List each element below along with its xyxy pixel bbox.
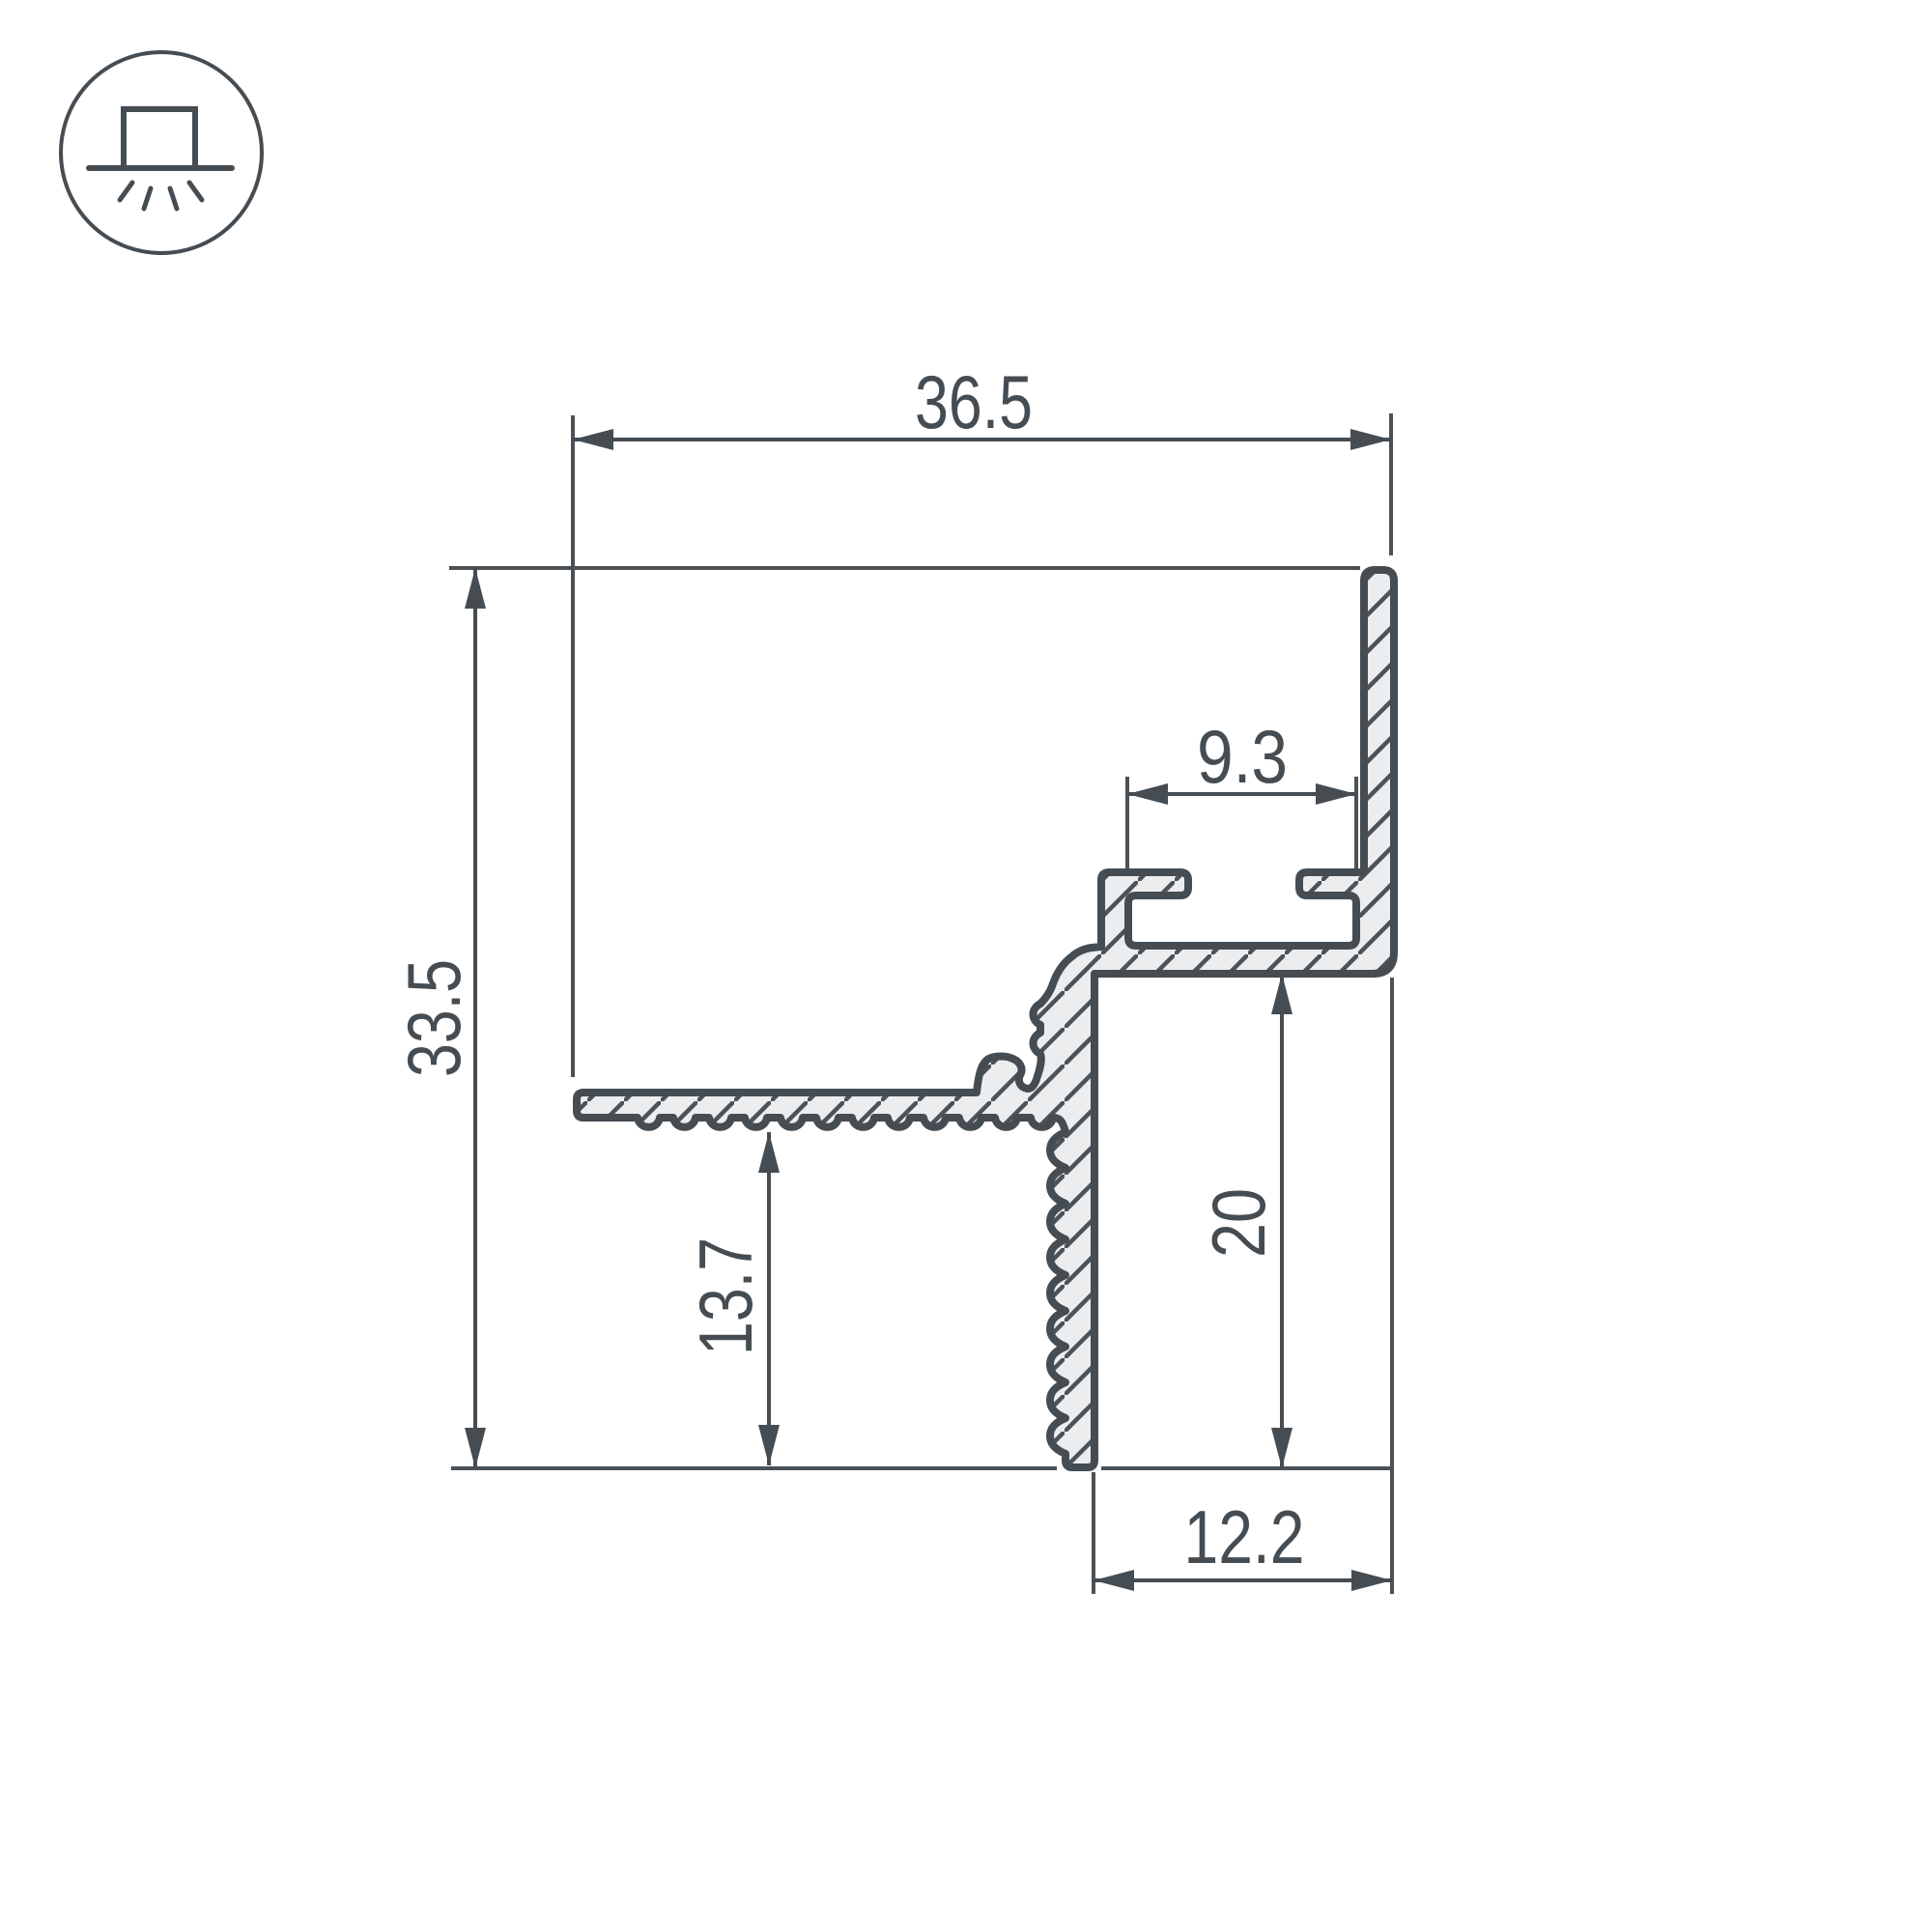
arrowhead-right [1351,1570,1392,1591]
arrowhead-bottom [465,1428,486,1468]
icon-circle [61,52,262,253]
arrowhead-right [1316,783,1356,805]
dim-value-wall-depth: 20 [1196,1188,1281,1258]
dim-value-flange-depth: 13.7 [683,1237,768,1355]
dim-value-overall-width: 36.5 [915,359,1033,444]
profile-technical-drawing: 36.5 33.5 9.3 20 13.7 12.2 [0,0,1932,1932]
dimension-slot-width: 9.3 [1127,714,1356,805]
arrowhead-bottom [758,1425,780,1465]
contour-and-extension-lines [449,413,1392,1594]
icon-light-rays [120,183,202,209]
arrowhead-left [573,429,613,450]
dim-value-slot-width: 9.3 [1197,714,1288,799]
dimension-overall-width: 36.5 [573,359,1391,450]
dimension-wall-depth: 20 [1196,974,1293,1468]
arrowhead-top [758,1132,780,1173]
dim-value-overall-height: 33.5 [391,959,476,1077]
dimension-flange-depth: 13.7 [683,1132,780,1465]
recessed-mount-light-icon [61,52,262,253]
arrowhead-bottom [1271,1428,1293,1468]
arrowhead-top [1271,974,1293,1014]
arrowhead-top [465,568,486,609]
technical-drawing-page: 36.5 33.5 9.3 20 13.7 12.2 [0,0,1932,1932]
dimension-bottom-width: 12.2 [1094,1494,1392,1591]
arrowhead-left [1127,783,1168,805]
dimension-overall-height: 33.5 [391,568,486,1468]
arrowhead-right [1350,429,1391,450]
dim-value-bottom-width: 12.2 [1184,1494,1305,1579]
icon-lamp-housing [124,109,195,168]
arrowhead-left [1094,1570,1134,1591]
